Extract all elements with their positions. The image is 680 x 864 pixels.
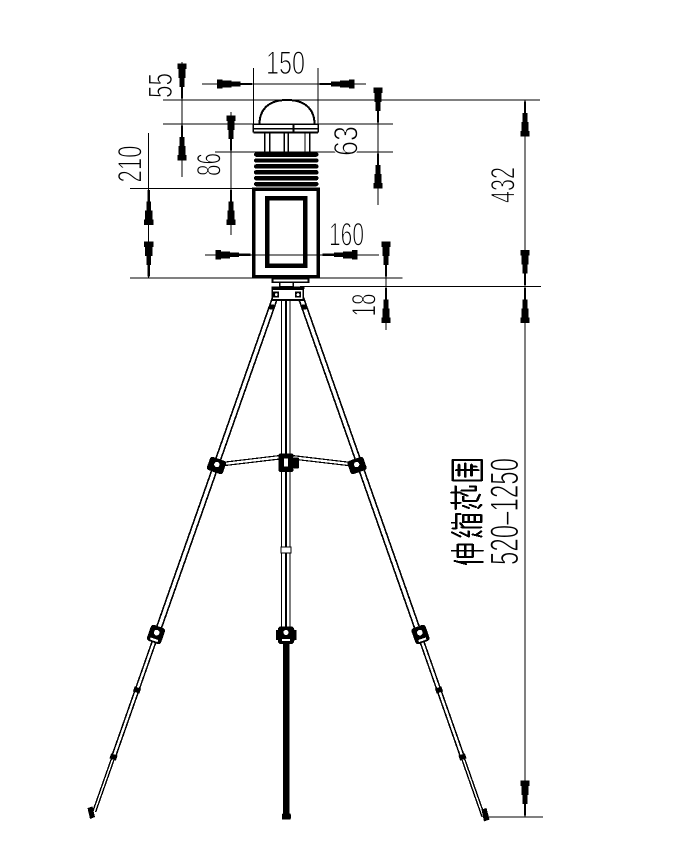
svg-text:63: 63 [328,126,366,156]
svg-text:432: 432 [485,167,523,203]
svg-text:18: 18 [346,294,384,317]
svg-text:150: 150 [266,45,305,81]
svg-text:210: 210 [112,146,150,183]
svg-text:160: 160 [329,217,364,253]
svg-text:520–1250: 520–1250 [483,458,527,565]
svg-text:55: 55 [142,73,180,98]
svg-text:86: 86 [191,153,229,176]
